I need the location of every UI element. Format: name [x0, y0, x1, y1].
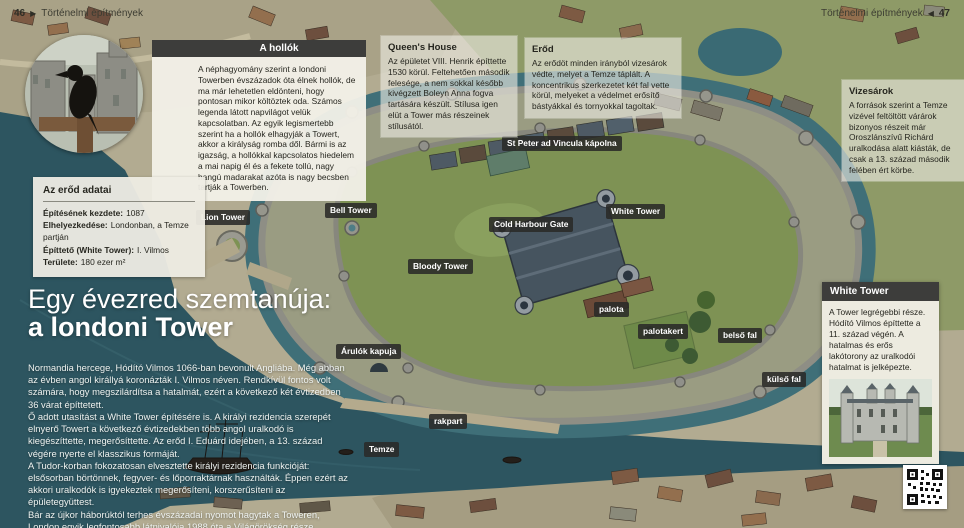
callout-queens-house-body: Az épületet VIII. Henrik építtette 1530 …	[388, 56, 510, 131]
arrow-right-icon: ▶	[30, 9, 36, 18]
callout-erod: Erőd Az erődöt minden irányból vizesárok…	[525, 38, 681, 118]
map-label-belso-fal: belső fal	[718, 328, 762, 343]
page-header-left: 46 ▶ Történelmi építmények	[14, 8, 143, 19]
callout-vizesarok: Vizesárok A források szerint a Temze viz…	[842, 80, 964, 181]
callout-white-tower-body: A Tower legrégebbi része. Hódító Vilmos …	[829, 307, 932, 373]
page-number-right: 47	[939, 8, 950, 19]
map-label-bloody-tower: Bloody Tower	[408, 259, 473, 274]
fact-row: Építésének kezdete:1087	[43, 207, 195, 219]
raven-photo	[25, 35, 143, 153]
fact-value: I. Vilmos	[137, 245, 169, 255]
intro-text: Normandia hercege, Hódító Vilmos 1066-ba…	[28, 362, 348, 528]
callout-ravens-title: A hollók	[152, 40, 366, 57]
fact-label: Elhelyezkedése:	[43, 220, 108, 230]
callout-queens-house-title: Queen's House	[388, 42, 510, 53]
map-label-temze: Temze	[364, 442, 399, 457]
page-number-left: 46	[14, 8, 25, 19]
map-label-palotakert: palotakert	[638, 324, 688, 339]
map-label-bell-tower: Bell Tower	[325, 203, 377, 218]
map-label-st-peter: St Peter ad Vincula kápolna	[502, 136, 622, 151]
fact-label: Építtető (White Tower):	[43, 245, 134, 255]
callout-erod-title: Erőd	[532, 44, 674, 55]
section-title-right: Történelmi építmények	[821, 8, 923, 19]
intro-paragraph: Normandia hercege, Hódító Vilmos 1066-ba…	[28, 362, 348, 411]
fact-value: 180 ezer m²	[81, 257, 126, 267]
section-title-left: Történelmi építmények	[41, 8, 143, 19]
callout-white-tower-title: White Tower	[822, 282, 939, 301]
intro-paragraph: Ő adott utasítást a White Tower építésér…	[28, 411, 348, 460]
fact-box: Az erőd adatai Építésének kezdete:1087 E…	[33, 177, 205, 277]
page-title-line2: a londoni Tower	[28, 314, 331, 342]
callout-vizesarok-title: Vizesárok	[849, 86, 964, 97]
callout-queens-house: Queen's House Az épületet VIII. Henrik é…	[381, 36, 517, 137]
fact-label: Építésének kezdete:	[43, 208, 123, 218]
arrow-left-icon: ◀	[928, 9, 934, 18]
intro-paragraph: Bár az újkor háborúktól terhes évszázada…	[28, 509, 348, 528]
intro-paragraph: A Tudor-korban fokozatosan elvesztette k…	[28, 460, 348, 509]
fact-row: Területe:180 ezer m²	[43, 256, 195, 268]
callout-white-tower: White Tower A Tower legrégebbi része. Hó…	[822, 282, 939, 464]
map-label-cold-harbour-gate: Cold Harbour Gate	[489, 217, 573, 232]
page-title: Egy évezred szemtanúja: a londoni Tower	[28, 286, 331, 341]
fact-value: 1087	[126, 208, 145, 218]
fact-row: Elhelyezkedése:Londonban, a Temze partjá…	[43, 219, 195, 243]
fact-row: Építtető (White Tower):I. Vilmos	[43, 244, 195, 256]
map-label-kulso-fal: külső fal	[762, 372, 806, 387]
map-label-white-tower: White Tower	[606, 204, 665, 219]
callout-vizesarok-body: A források szerint a Temze vizével feltö…	[849, 100, 964, 175]
map-label-arulok-kapuja: Árulók kapuja	[336, 344, 401, 359]
fact-box-title: Az erőd adatai	[43, 185, 195, 202]
page-title-line1: Egy évezred szemtanúja:	[28, 286, 331, 314]
qr-code	[903, 465, 947, 509]
page-header-right: Történelmi építmények ◀ 47	[821, 8, 950, 19]
callout-erod-body: Az erődöt minden irányból vizesárok védt…	[532, 58, 674, 112]
magazine-spread: 46 ▶ Történelmi építmények Történelmi ép…	[0, 0, 964, 528]
map-label-palota: palota	[594, 302, 629, 317]
map-label-rakpart: rakpart	[429, 414, 467, 429]
fact-label: Területe:	[43, 257, 78, 267]
white-tower-photo	[829, 379, 932, 457]
